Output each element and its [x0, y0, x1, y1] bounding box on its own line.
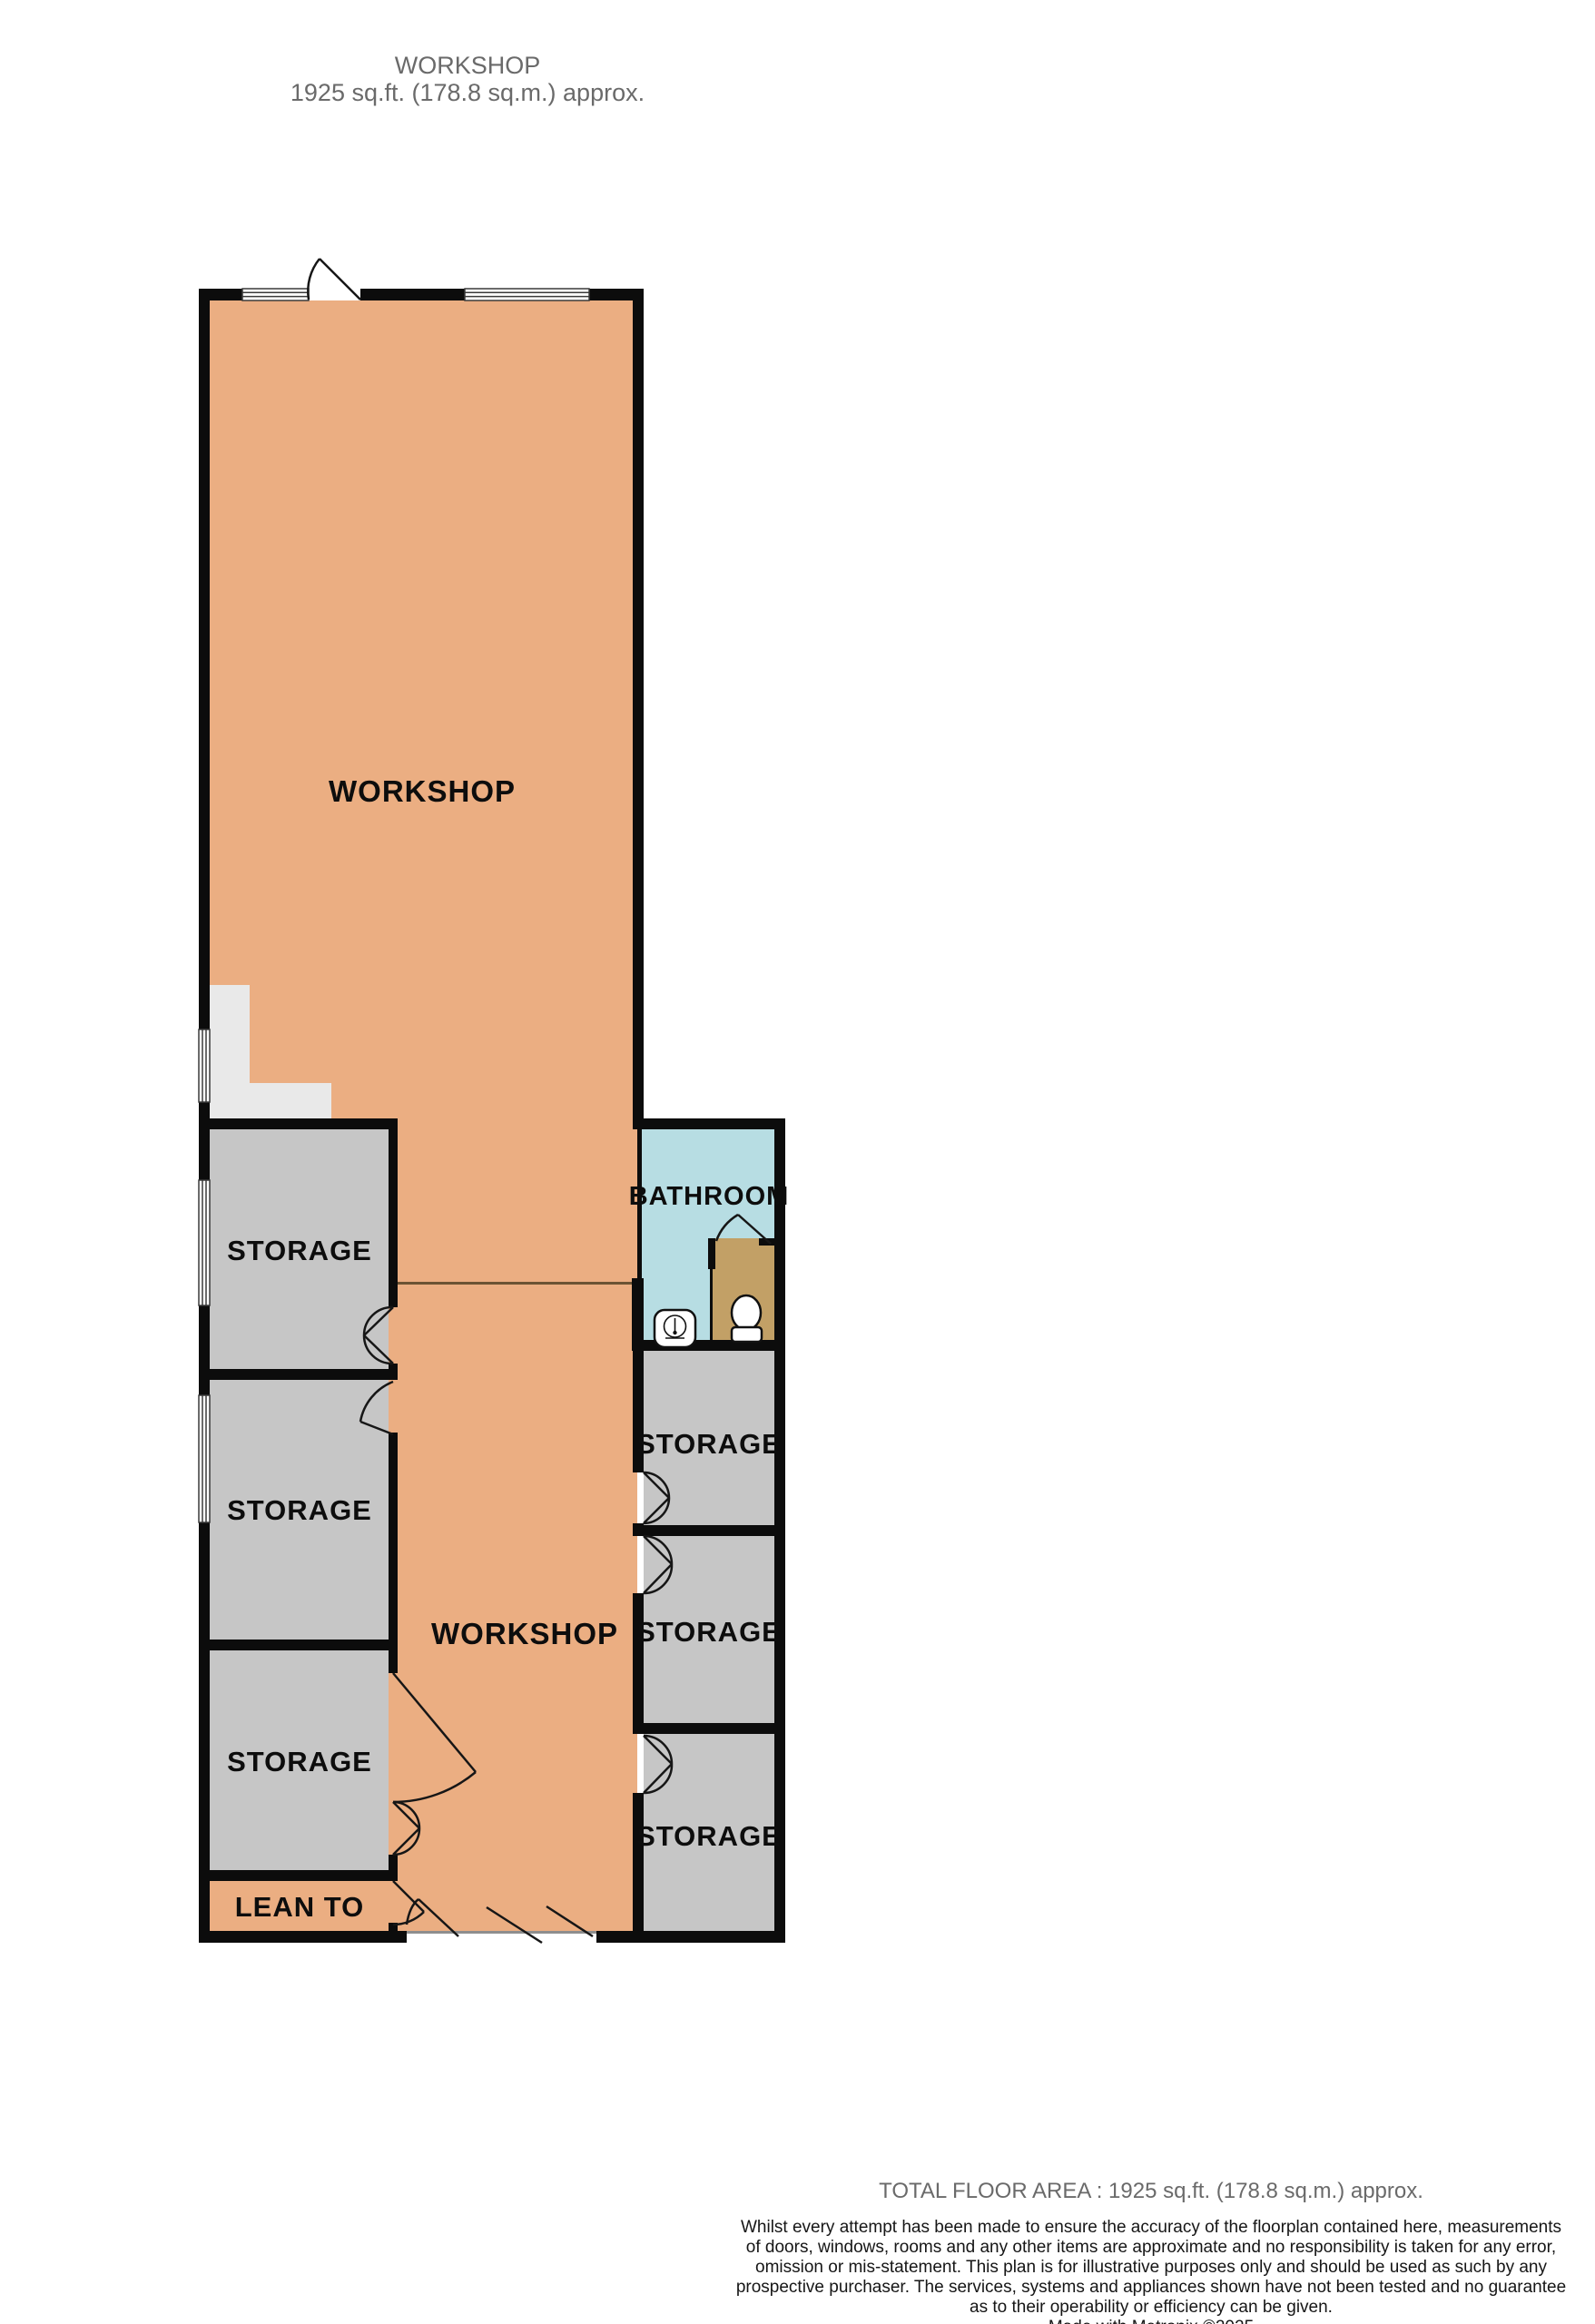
- room-workshop-upper-floor: [210, 300, 633, 1129]
- window-left-1: [199, 1029, 210, 1102]
- label-storage-left-1: STORAGE: [227, 1235, 372, 1266]
- disclaimer-line: Whilst every attempt has been made to en…: [722, 2218, 1580, 2238]
- door-top-entrance: [308, 259, 360, 300]
- floorplan-page: WORKSHOP 1925 sq.ft. (178.8 sq.m.) appro…: [0, 0, 1595, 2324]
- window-top-2: [465, 289, 589, 300]
- room-workshop-lower-floor: [398, 1129, 637, 1931]
- metropix-credit: Made with Metropix ©2025: [722, 2318, 1580, 2324]
- workshop-divider-line: [398, 1282, 637, 1285]
- total-floor-area: TOTAL FLOOR AREA : 1925 sq.ft. (178.8 sq…: [722, 2179, 1580, 2204]
- label-storage-right-2: STORAGE: [636, 1616, 782, 1648]
- disclaimer-line: prospective purchaser. The services, sys…: [722, 2278, 1580, 2298]
- label-workshop-upper: WORKSHOP: [329, 774, 516, 808]
- label-bathroom: BATHROOM: [629, 1182, 790, 1211]
- window-top-1: [242, 289, 309, 300]
- window-left-3: [199, 1395, 210, 1522]
- disclaimer: Whilst every attempt has been made to en…: [722, 2218, 1580, 2324]
- window-left-2: [199, 1180, 210, 1305]
- disclaimer-line: as to their operability or efficiency ca…: [722, 2298, 1580, 2318]
- label-workshop-lower: WORKSHOP: [431, 1617, 618, 1650]
- footer: TOTAL FLOOR AREA : 1925 sq.ft. (178.8 sq…: [722, 2179, 1580, 2324]
- sink-icon: [655, 1310, 695, 1347]
- label-storage-left-3: STORAGE: [227, 1746, 372, 1777]
- label-storage-left-2: STORAGE: [227, 1494, 372, 1526]
- disclaimer-line: omission or mis-statement. This plan is …: [722, 2258, 1580, 2278]
- floor-plan: WORKSHOP WORKSHOP STORAGE STORAGE STORAG…: [0, 0, 1595, 2324]
- label-storage-right-3: STORAGE: [636, 1820, 782, 1852]
- label-lean-to: LEAN TO: [235, 1891, 365, 1923]
- stairs-step-upper: [210, 985, 250, 1083]
- disclaimer-line: of doors, windows, rooms and any other i…: [722, 2238, 1580, 2258]
- bottom-opening-threshold: [407, 1931, 596, 1934]
- label-storage-right-1: STORAGE: [636, 1428, 782, 1460]
- toilet-icon: [732, 1295, 762, 1342]
